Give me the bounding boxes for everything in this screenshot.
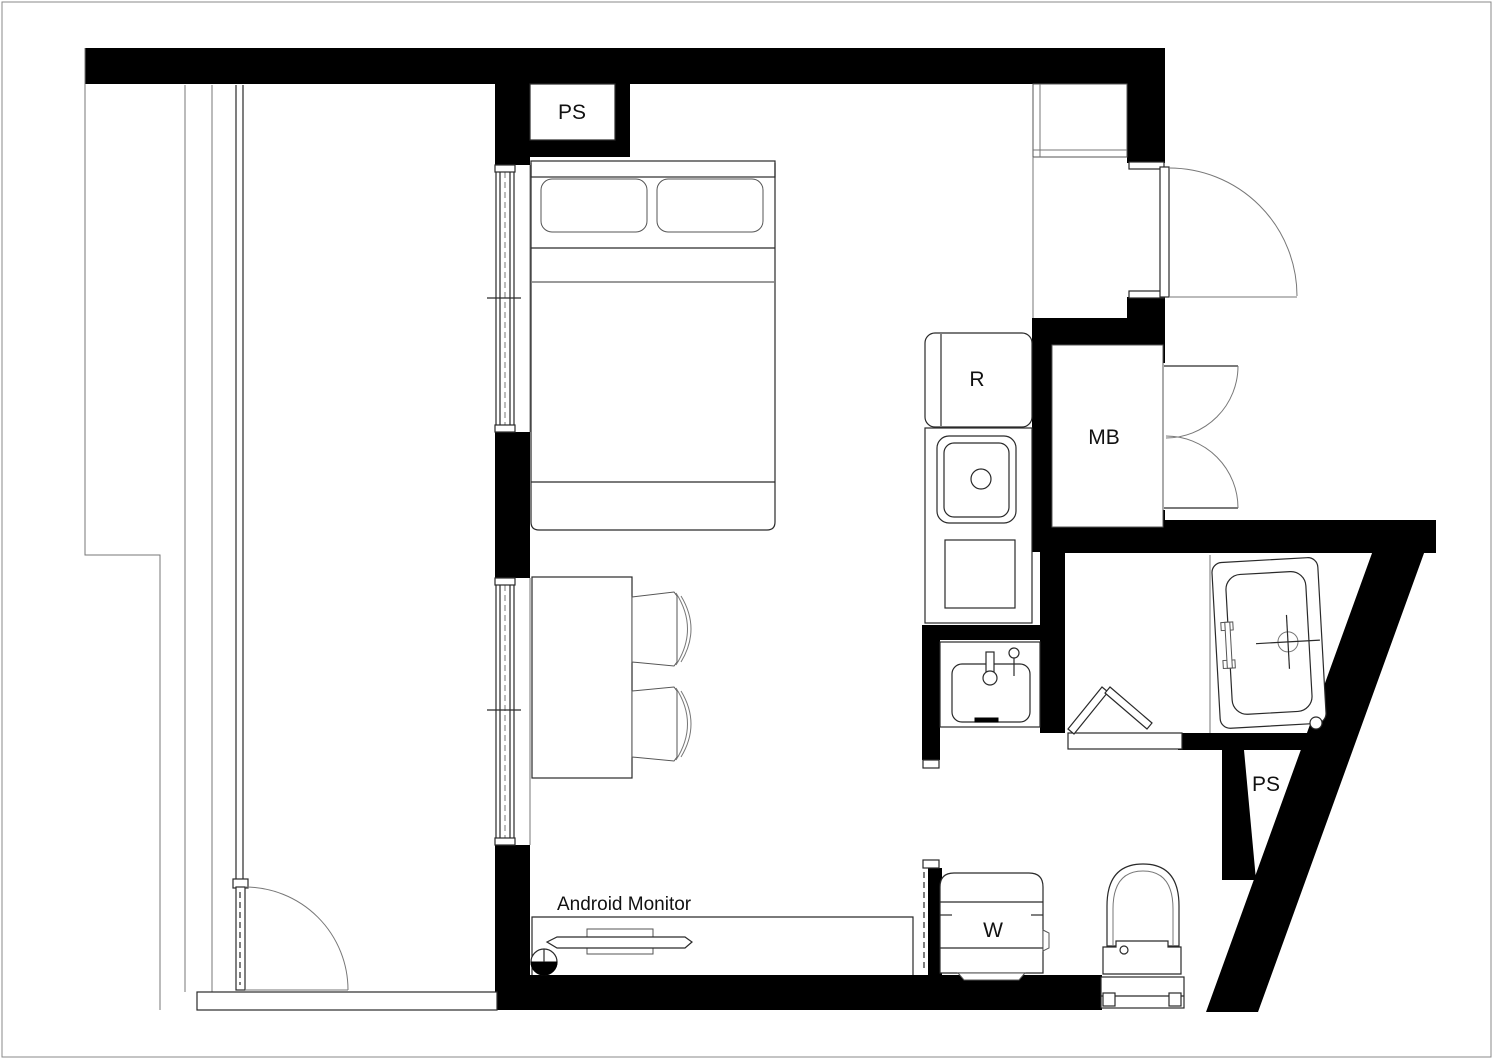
bath-door-track (1068, 733, 1182, 749)
chair-bottom (632, 687, 691, 761)
toilet-platform-foot-left (1103, 993, 1115, 1006)
washbasin-overflow (975, 718, 998, 722)
kitchen-cabinet-inner (945, 540, 1015, 608)
chair-top-back-outer (676, 593, 688, 665)
chair-top-seat (632, 592, 677, 666)
pillow-right (657, 179, 763, 232)
wall-west-lower (495, 845, 530, 978)
mb-door-arc-top (1166, 366, 1238, 438)
balcony-threshold (197, 992, 497, 1010)
entrance-door-swing-arc (1169, 168, 1297, 296)
meter-box (1052, 345, 1238, 527)
bathtub (1211, 557, 1326, 729)
window-lower-cap-top (495, 578, 515, 585)
wall-west-middle (495, 432, 530, 578)
wall-bath-left (1040, 553, 1065, 733)
dining-set (532, 577, 691, 778)
balcony (85, 48, 497, 1010)
chair-top (632, 592, 691, 666)
window-upper-cap-bottom (495, 425, 515, 432)
bifold-panel-left (1068, 687, 1108, 734)
mb-door-arc-bottom (1166, 436, 1238, 508)
hall-door-jamb-bottom (923, 860, 939, 868)
window-upper-cap-top (495, 165, 515, 172)
kitchen-sink-drain (971, 469, 991, 489)
chair-bottom-back-outer (676, 688, 688, 760)
desk-area (531, 917, 913, 975)
label-android-monitor: Android Monitor (557, 894, 692, 915)
wall-washbasin-left (922, 625, 940, 760)
monitor-screen (547, 937, 692, 948)
wall-bath-top-inner (1040, 527, 1167, 553)
datum-symbol (531, 949, 557, 975)
label-washer: W (983, 919, 1003, 942)
bathroom (1068, 555, 1327, 749)
toilet-bowl-outer (1107, 864, 1179, 946)
wall-washbasin-top (925, 625, 1057, 640)
toilet (1101, 864, 1184, 1008)
label-ps-top: PS (558, 101, 586, 124)
hall-door-jamb-top (923, 760, 939, 768)
washer-hose-nub (1043, 930, 1049, 951)
wall-bath-bottom (1178, 733, 1310, 750)
bifold-panel-right (1105, 687, 1152, 729)
label-meter-box: MB (1088, 426, 1120, 449)
wall-top (85, 48, 1165, 84)
pillow-left (541, 179, 647, 232)
bed-headboard (531, 161, 775, 177)
dining-table (532, 577, 632, 778)
chair-bottom-seat (632, 687, 677, 761)
floor-plan-drawing: PS R MB Android Monitor W PS (0, 0, 1500, 1060)
datum-fill (531, 962, 557, 975)
wall-entry-upper (1127, 84, 1165, 163)
entrance-door-leaf (1160, 167, 1169, 297)
double-bed (531, 161, 775, 530)
washbasin-knob (1009, 648, 1019, 658)
wall-ps-left (495, 84, 530, 165)
label-ps-bottom: PS (1252, 773, 1280, 796)
entrance-jamb-bottom (1129, 291, 1164, 298)
entrance-jamb-top (1129, 162, 1164, 169)
wall-kitchen-right (1032, 322, 1052, 552)
toilet-button (1120, 946, 1128, 954)
wall-ps-bottom (530, 140, 630, 157)
shoe-cabinet (1033, 84, 1127, 157)
floor-plan-canvas: PS R MB Android Monitor W PS (0, 0, 1500, 1060)
toilet-platform-foot-right (1169, 993, 1181, 1006)
balcony-door-swing-arc (245, 887, 348, 990)
window-lower-cap-bottom (495, 838, 515, 845)
wall-ps-shaft-left (1222, 750, 1256, 880)
bathtub-drain (1310, 717, 1322, 729)
label-refrigerator: R (969, 368, 984, 391)
washer-foot (958, 973, 1025, 980)
washbasin-faucet-head (983, 671, 997, 685)
balcony-outer-boundary (85, 48, 160, 1010)
